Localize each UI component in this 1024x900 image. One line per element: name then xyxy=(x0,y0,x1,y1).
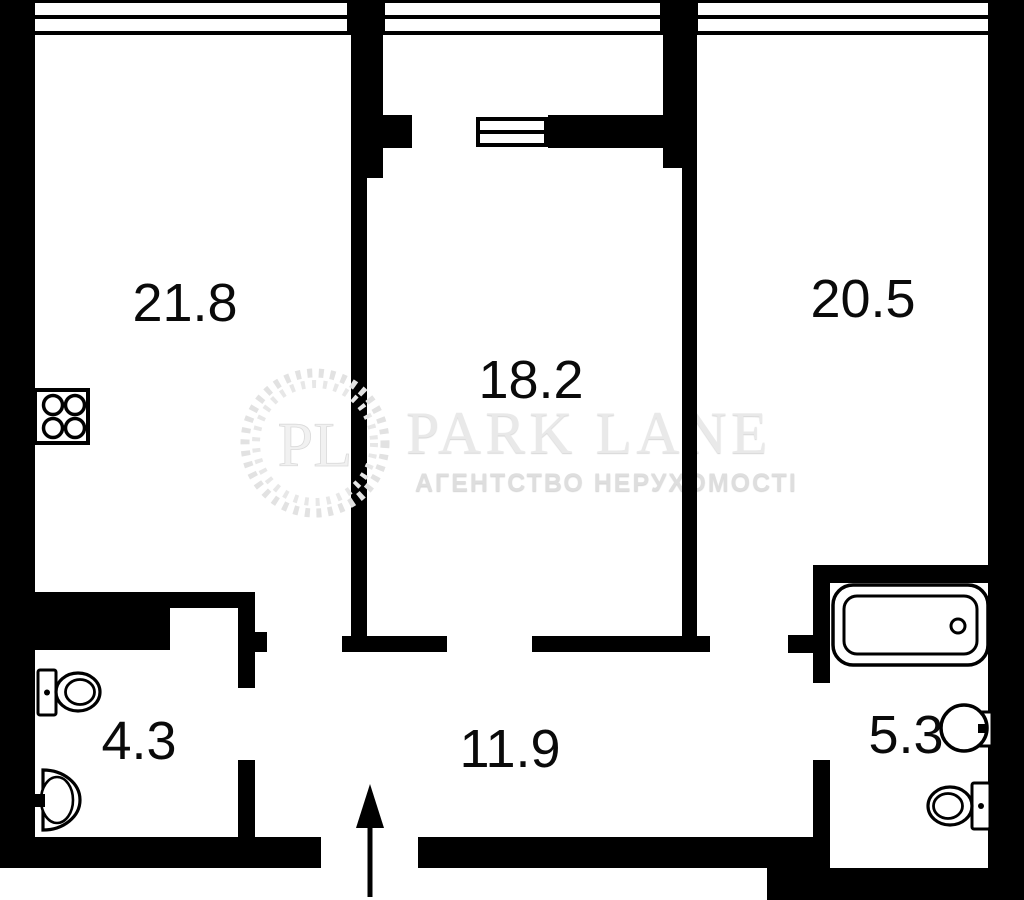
wall-segment xyxy=(35,837,321,868)
room-area-label: 18.2 xyxy=(421,353,641,407)
wall-segment xyxy=(532,636,710,652)
wall-segment xyxy=(767,868,1024,900)
bathtub-icon xyxy=(831,583,992,669)
wall-segment xyxy=(682,168,697,636)
watermark-tagline: АГЕНТСТВО НЕРУХОМОСТІ xyxy=(415,471,798,496)
wall-segment xyxy=(660,0,698,35)
floor-plan: PARK LANE АГЕНТСТВО НЕРУХОМОСТІ PL xyxy=(0,0,1024,900)
wall-segment xyxy=(35,592,170,650)
window-pane-divider xyxy=(35,15,347,19)
toilet-icon xyxy=(924,780,994,834)
watermark-brand: PARK LANE xyxy=(406,403,772,463)
wall-segment xyxy=(548,115,663,148)
toilet-icon xyxy=(36,666,102,720)
window-pane-divider xyxy=(698,15,988,19)
window-pane-divider xyxy=(480,130,544,134)
wall-segment xyxy=(813,760,830,837)
wall-segment xyxy=(988,0,1024,900)
wall-segment xyxy=(663,35,697,168)
wall-segment xyxy=(255,632,267,652)
window-pane-divider xyxy=(385,15,660,19)
wall-segment xyxy=(170,592,238,608)
wall-segment xyxy=(351,115,412,148)
wall-segment xyxy=(342,636,447,652)
balcony-window xyxy=(476,117,548,147)
room-area-label: 21.8 xyxy=(75,276,295,330)
wall-segment xyxy=(238,760,255,837)
window xyxy=(698,0,988,35)
wall-segment xyxy=(418,837,830,868)
stove-icon xyxy=(33,388,90,445)
wall-segment xyxy=(813,565,830,683)
wall-segment xyxy=(813,565,990,583)
wreath-initials: PL xyxy=(278,409,353,480)
wall-segment xyxy=(351,148,383,178)
wall-segment xyxy=(351,35,383,115)
wall-segment xyxy=(788,635,813,653)
sink-icon xyxy=(33,766,83,834)
room-area-label: 5.3 xyxy=(796,708,1016,762)
room-area-label: 11.9 xyxy=(400,722,620,776)
wall-segment xyxy=(238,592,255,688)
entrance-arrow-icon xyxy=(350,782,390,900)
window xyxy=(35,0,347,35)
room-area-label: 4.3 xyxy=(29,714,249,768)
window xyxy=(385,0,660,35)
wreath-logo: PL xyxy=(230,358,400,528)
wall-segment xyxy=(347,0,385,35)
room-area-label: 20.5 xyxy=(753,272,973,326)
